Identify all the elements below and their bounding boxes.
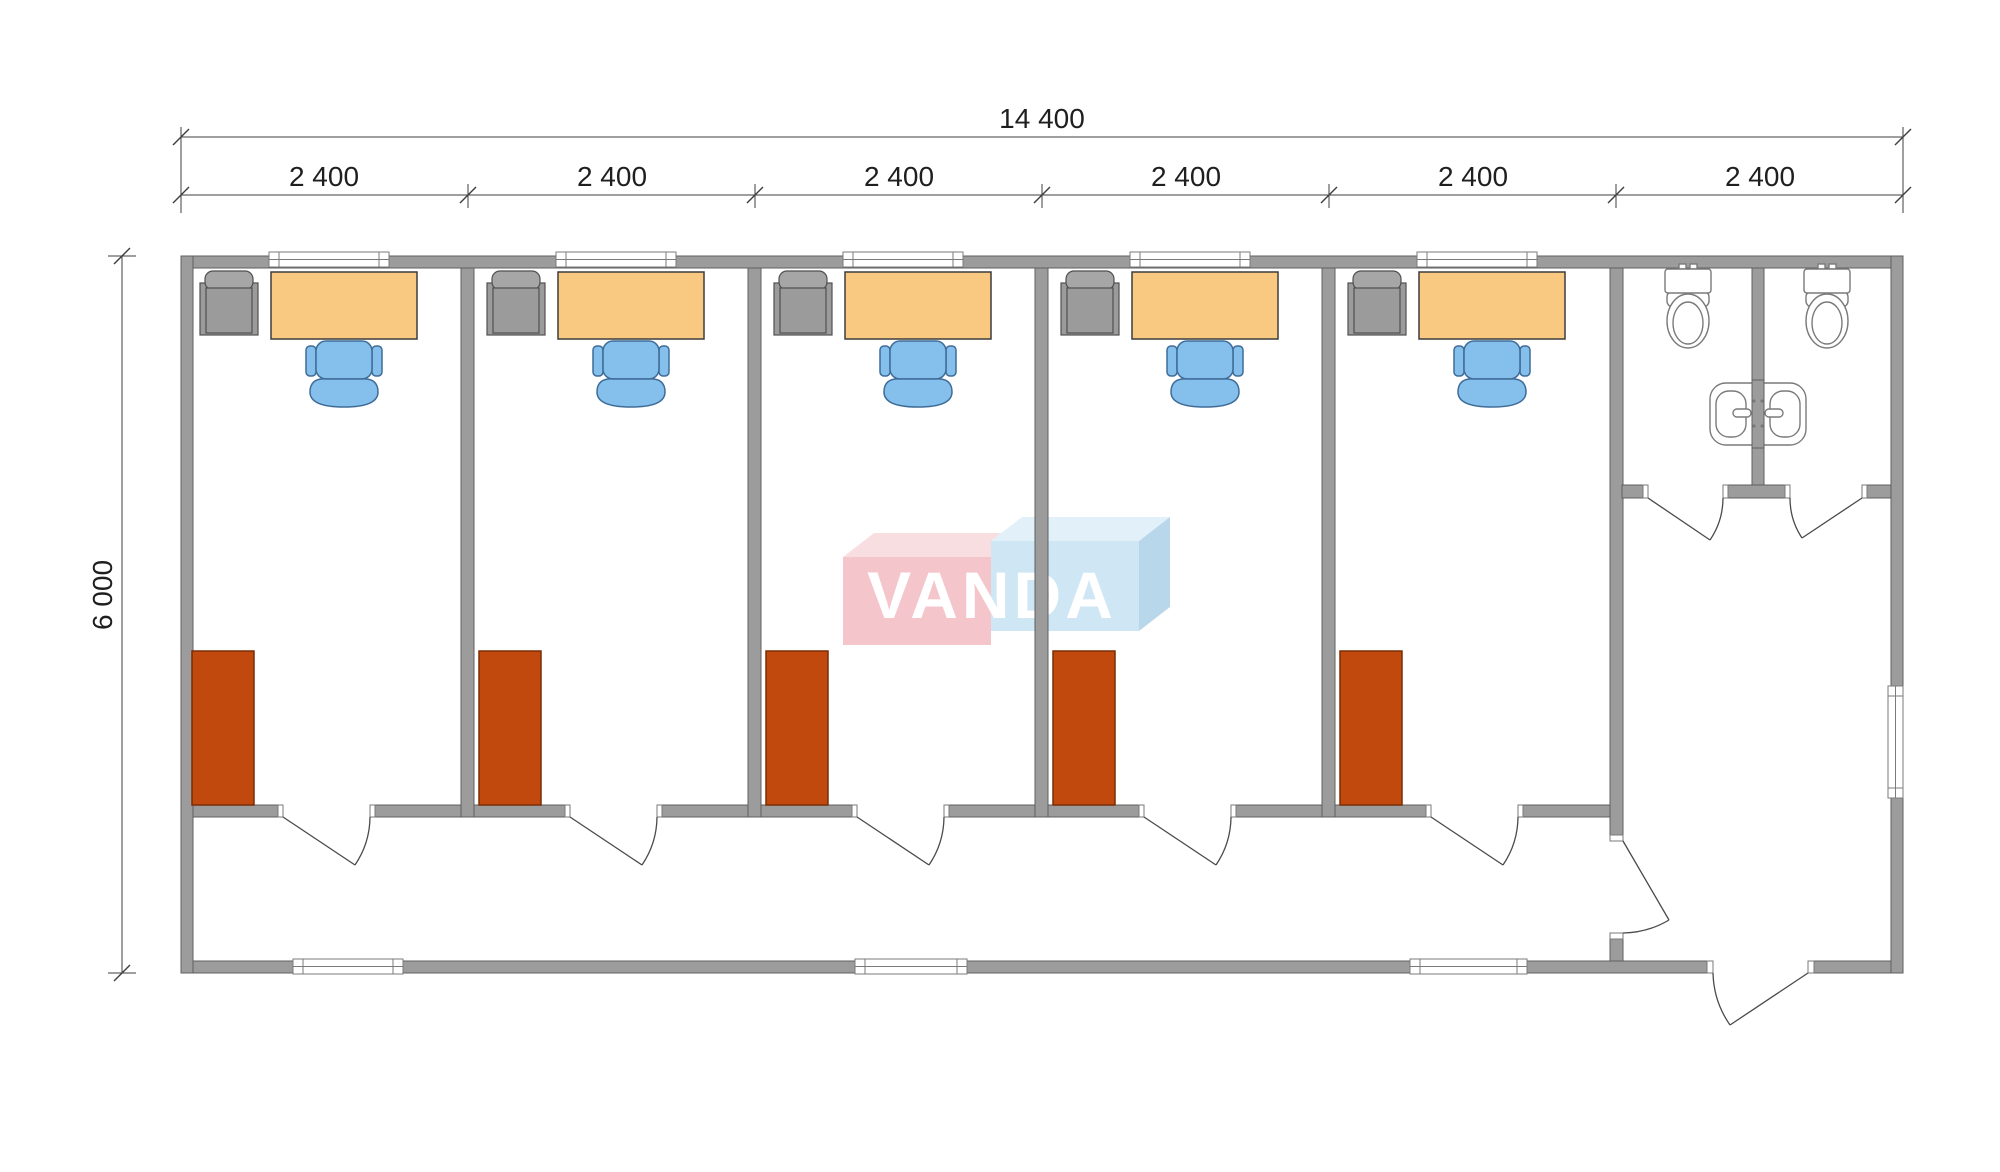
door-jamb	[1862, 485, 1867, 498]
partition-wc-stalls	[1752, 268, 1764, 490]
door-jamb	[1707, 961, 1713, 973]
dimension-label-segment-6: 2 400	[1725, 161, 1795, 192]
dimension-segments: 2 400 2 400 2 400 2 400 2 400 2 400	[173, 161, 1911, 208]
door-swing	[1790, 498, 1862, 538]
flush-button	[1829, 264, 1836, 269]
building-walls	[181, 256, 1903, 973]
toilet-bowl-inner	[1812, 302, 1842, 344]
mount-dot	[1752, 424, 1755, 427]
wall-bottom	[181, 961, 1903, 973]
door-jamb	[1785, 485, 1790, 498]
door-jamb	[1643, 485, 1648, 498]
partition-room-1-2	[461, 268, 474, 817]
office-room-2	[479, 252, 704, 865]
floor-plan-drawing: VANDA	[0, 0, 2000, 1172]
partition-room-4-5	[1322, 268, 1335, 817]
flush-button	[1679, 264, 1686, 269]
side-window	[1888, 686, 1903, 798]
flush-button	[1690, 264, 1697, 269]
mount-dot	[1760, 424, 1763, 427]
toilet-tank	[1804, 269, 1850, 293]
floor-plan-canvas: VANDA	[0, 0, 2000, 1172]
toilet-1	[1665, 264, 1711, 348]
door-opening	[1609, 841, 1624, 933]
partition-room-3-4	[1035, 268, 1048, 817]
partition-room-2-3	[748, 268, 761, 817]
vestibule-door	[1609, 835, 1669, 939]
dimension-label-segment-5: 2 400	[1438, 161, 1508, 192]
door-swing	[1623, 841, 1669, 933]
dimension-label-total: 14 400	[999, 103, 1085, 134]
door-opening	[1712, 960, 1809, 974]
wall-top	[181, 256, 1903, 268]
dimension-label-segment-1: 2 400	[289, 161, 359, 192]
door-swing	[1648, 498, 1723, 540]
dimension-label-height: 6 000	[87, 560, 118, 630]
office-room-5	[1340, 252, 1565, 865]
logo-text: VANDA	[867, 558, 1117, 632]
wall-left	[181, 256, 193, 973]
door-jamb	[1610, 835, 1623, 841]
logo-blue-box-top	[991, 517, 1170, 541]
door-opening	[1790, 484, 1862, 499]
entrance-door	[1707, 960, 1814, 1025]
office-room-1	[192, 252, 417, 865]
tap-right	[1765, 409, 1783, 417]
toilet-bowl-inner	[1673, 302, 1703, 344]
toilet-tank	[1665, 269, 1711, 293]
dimension-label-segment-3: 2 400	[864, 161, 934, 192]
tap-left	[1733, 409, 1751, 417]
dimension-label-segment-4: 2 400	[1151, 161, 1221, 192]
door-jamb	[1723, 485, 1728, 498]
partition-through-basins	[1752, 380, 1764, 448]
door-swing	[1713, 973, 1808, 1025]
dimension-label-segment-2: 2 400	[577, 161, 647, 192]
dimension-height: 6 000	[87, 248, 136, 981]
flush-button	[1818, 264, 1825, 269]
toilet-2	[1804, 264, 1850, 348]
washbasins	[1710, 380, 1806, 448]
door-opening	[1648, 484, 1723, 499]
wall-right	[1891, 256, 1903, 973]
mount-dot	[1752, 399, 1755, 402]
door-jamb	[1610, 933, 1623, 939]
mount-dot	[1760, 399, 1763, 402]
vanda-logo: VANDA	[843, 517, 1170, 645]
door-jamb	[1808, 961, 1814, 973]
